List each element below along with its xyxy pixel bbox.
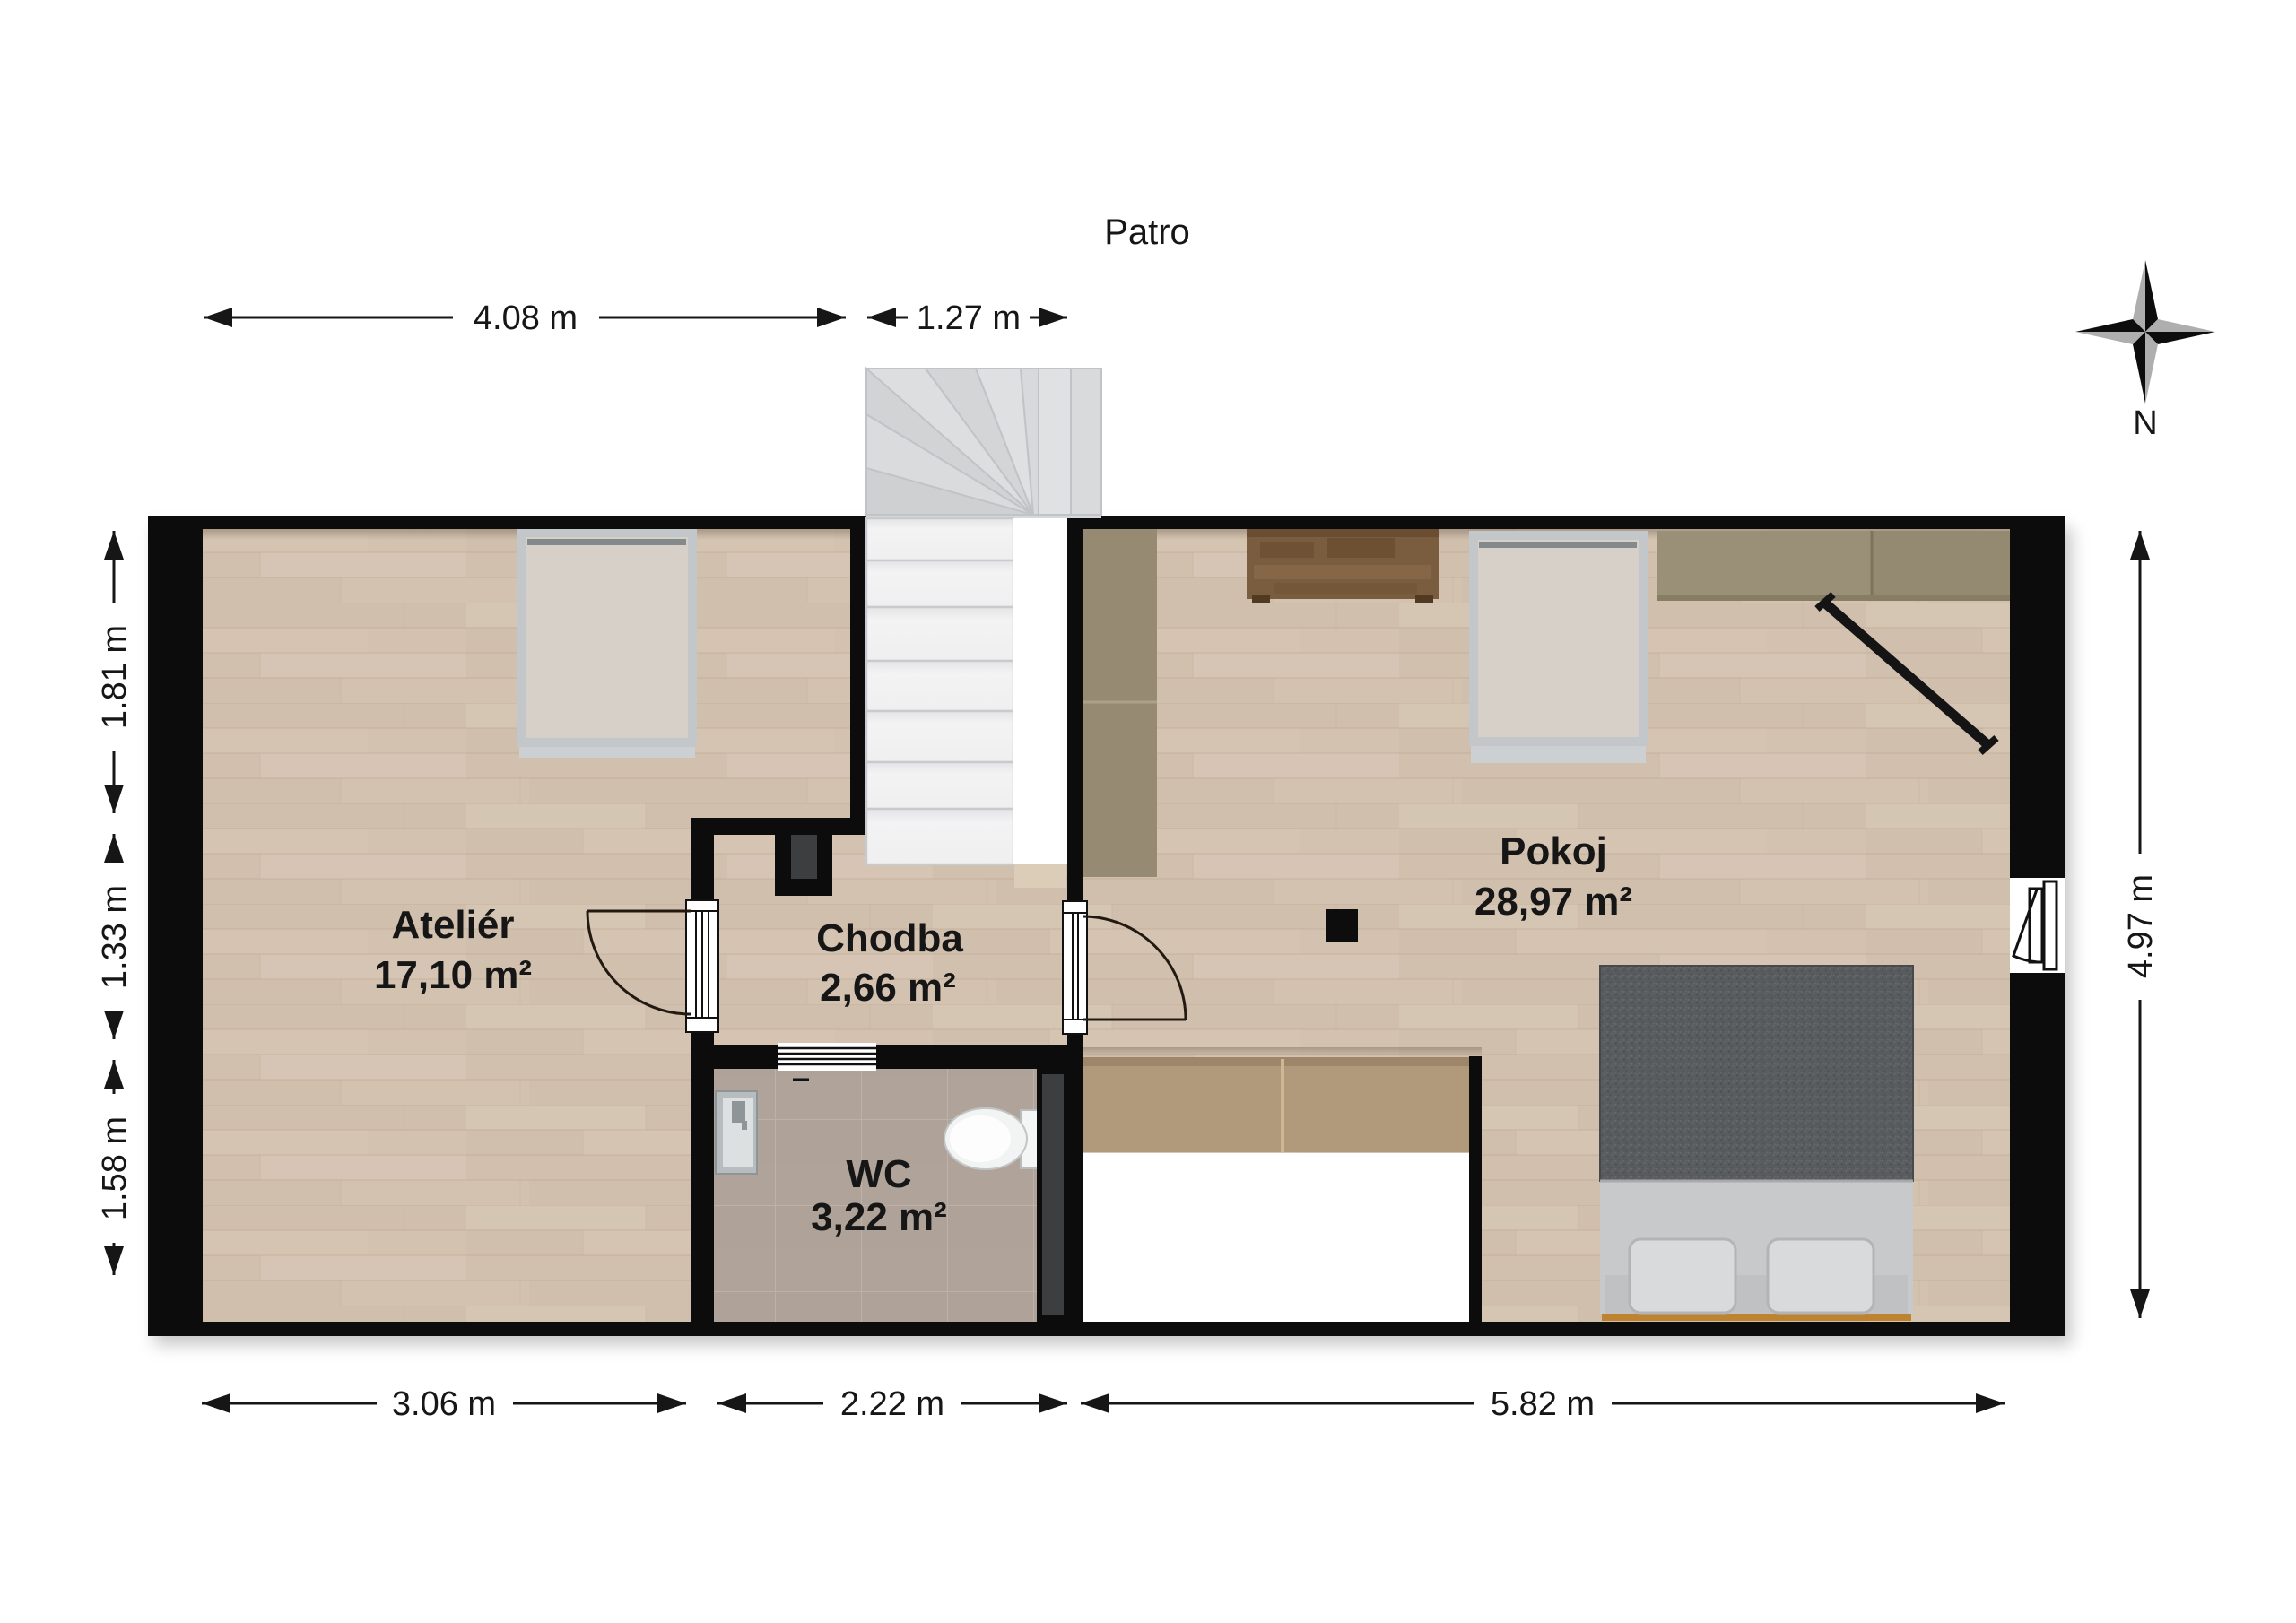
svg-text:Pokoj: Pokoj (1500, 829, 1607, 873)
svg-text:Patro: Patro (1104, 213, 1190, 252)
svg-text:5.82 m: 5.82 m (1491, 1385, 1595, 1423)
svg-text:1.81 m: 1.81 m (96, 625, 134, 729)
svg-text:1.27 m: 1.27 m (917, 299, 1021, 337)
svg-text:Ateliér: Ateliér (392, 903, 515, 947)
svg-text:WC: WC (846, 1152, 911, 1196)
svg-text:N: N (2133, 404, 2157, 442)
svg-text:1.33 m: 1.33 m (96, 885, 134, 989)
svg-text:28,97 m²: 28,97 m² (1474, 880, 1632, 924)
svg-text:Chodba: Chodba (816, 916, 963, 960)
svg-text:4.08 m: 4.08 m (474, 299, 578, 337)
svg-text:3,22 m²: 3,22 m² (811, 1195, 947, 1239)
svg-text:1.58 m: 1.58 m (96, 1116, 134, 1220)
svg-text:17,10 m²: 17,10 m² (374, 953, 532, 997)
svg-text:3.06 m: 3.06 m (392, 1385, 496, 1423)
svg-text:2,66 m²: 2,66 m² (820, 966, 956, 1010)
svg-text:4.97 m: 4.97 m (2122, 874, 2160, 978)
svg-text:2.22 m: 2.22 m (840, 1385, 944, 1423)
